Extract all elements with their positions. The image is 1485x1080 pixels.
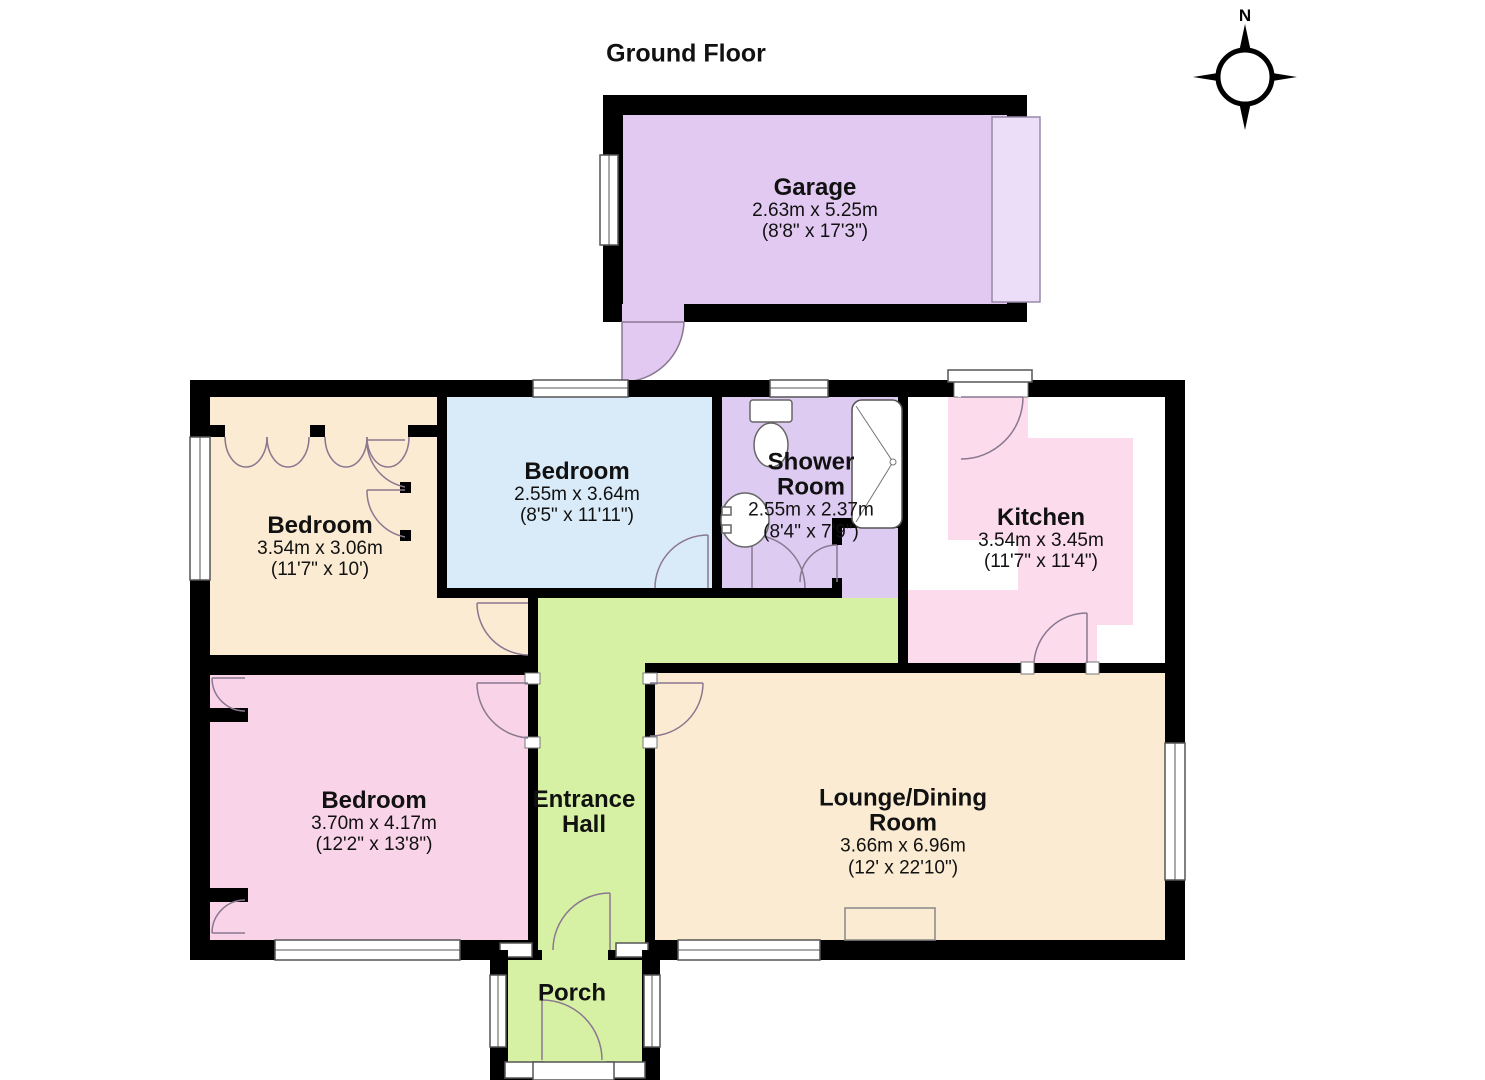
room-label-lounge-dining: Lounge/Dining Room 3.66m x 6.96m (12' x … xyxy=(798,786,1008,879)
floor-plan: Ground Floor N Garage 2.63m x 5.25m (8'8… xyxy=(0,0,1485,1080)
garage-window xyxy=(600,155,618,245)
room-label-bedroom-2: Bedroom 2.55m x 3.64m (8'5" x 11'11") xyxy=(472,459,682,527)
room-label-shower-room: Shower Room 2.55m x 2.37m (8'4" x 7'9") xyxy=(736,450,886,543)
compass-icon xyxy=(1193,24,1297,130)
room-label-bedroom-3: Bedroom 3.70m x 4.17m (12'2" x 13'8") xyxy=(259,788,489,856)
room-label-kitchen: Kitchen 3.54m x 3.45m (11'7" x 11'4") xyxy=(926,505,1156,573)
garage-door-strip xyxy=(992,117,1040,302)
room-label-entrance-hall: Entrance Hall xyxy=(524,787,644,837)
fireplace xyxy=(845,908,935,940)
porch-room xyxy=(490,950,660,1080)
room-label-porch: Porch xyxy=(512,980,632,1005)
garage-door-swing xyxy=(622,322,684,382)
porch-opening xyxy=(542,940,608,960)
room-label-garage: Garage 2.63m x 5.25m (8'8" x 17'3") xyxy=(705,175,925,243)
page-title: Ground Floor xyxy=(606,40,766,69)
compass-north-label: N xyxy=(1239,6,1251,26)
front-door-step xyxy=(533,1062,614,1080)
room-label-bedroom-1: Bedroom 3.54m x 3.06m (11'7" x 10') xyxy=(205,513,435,581)
